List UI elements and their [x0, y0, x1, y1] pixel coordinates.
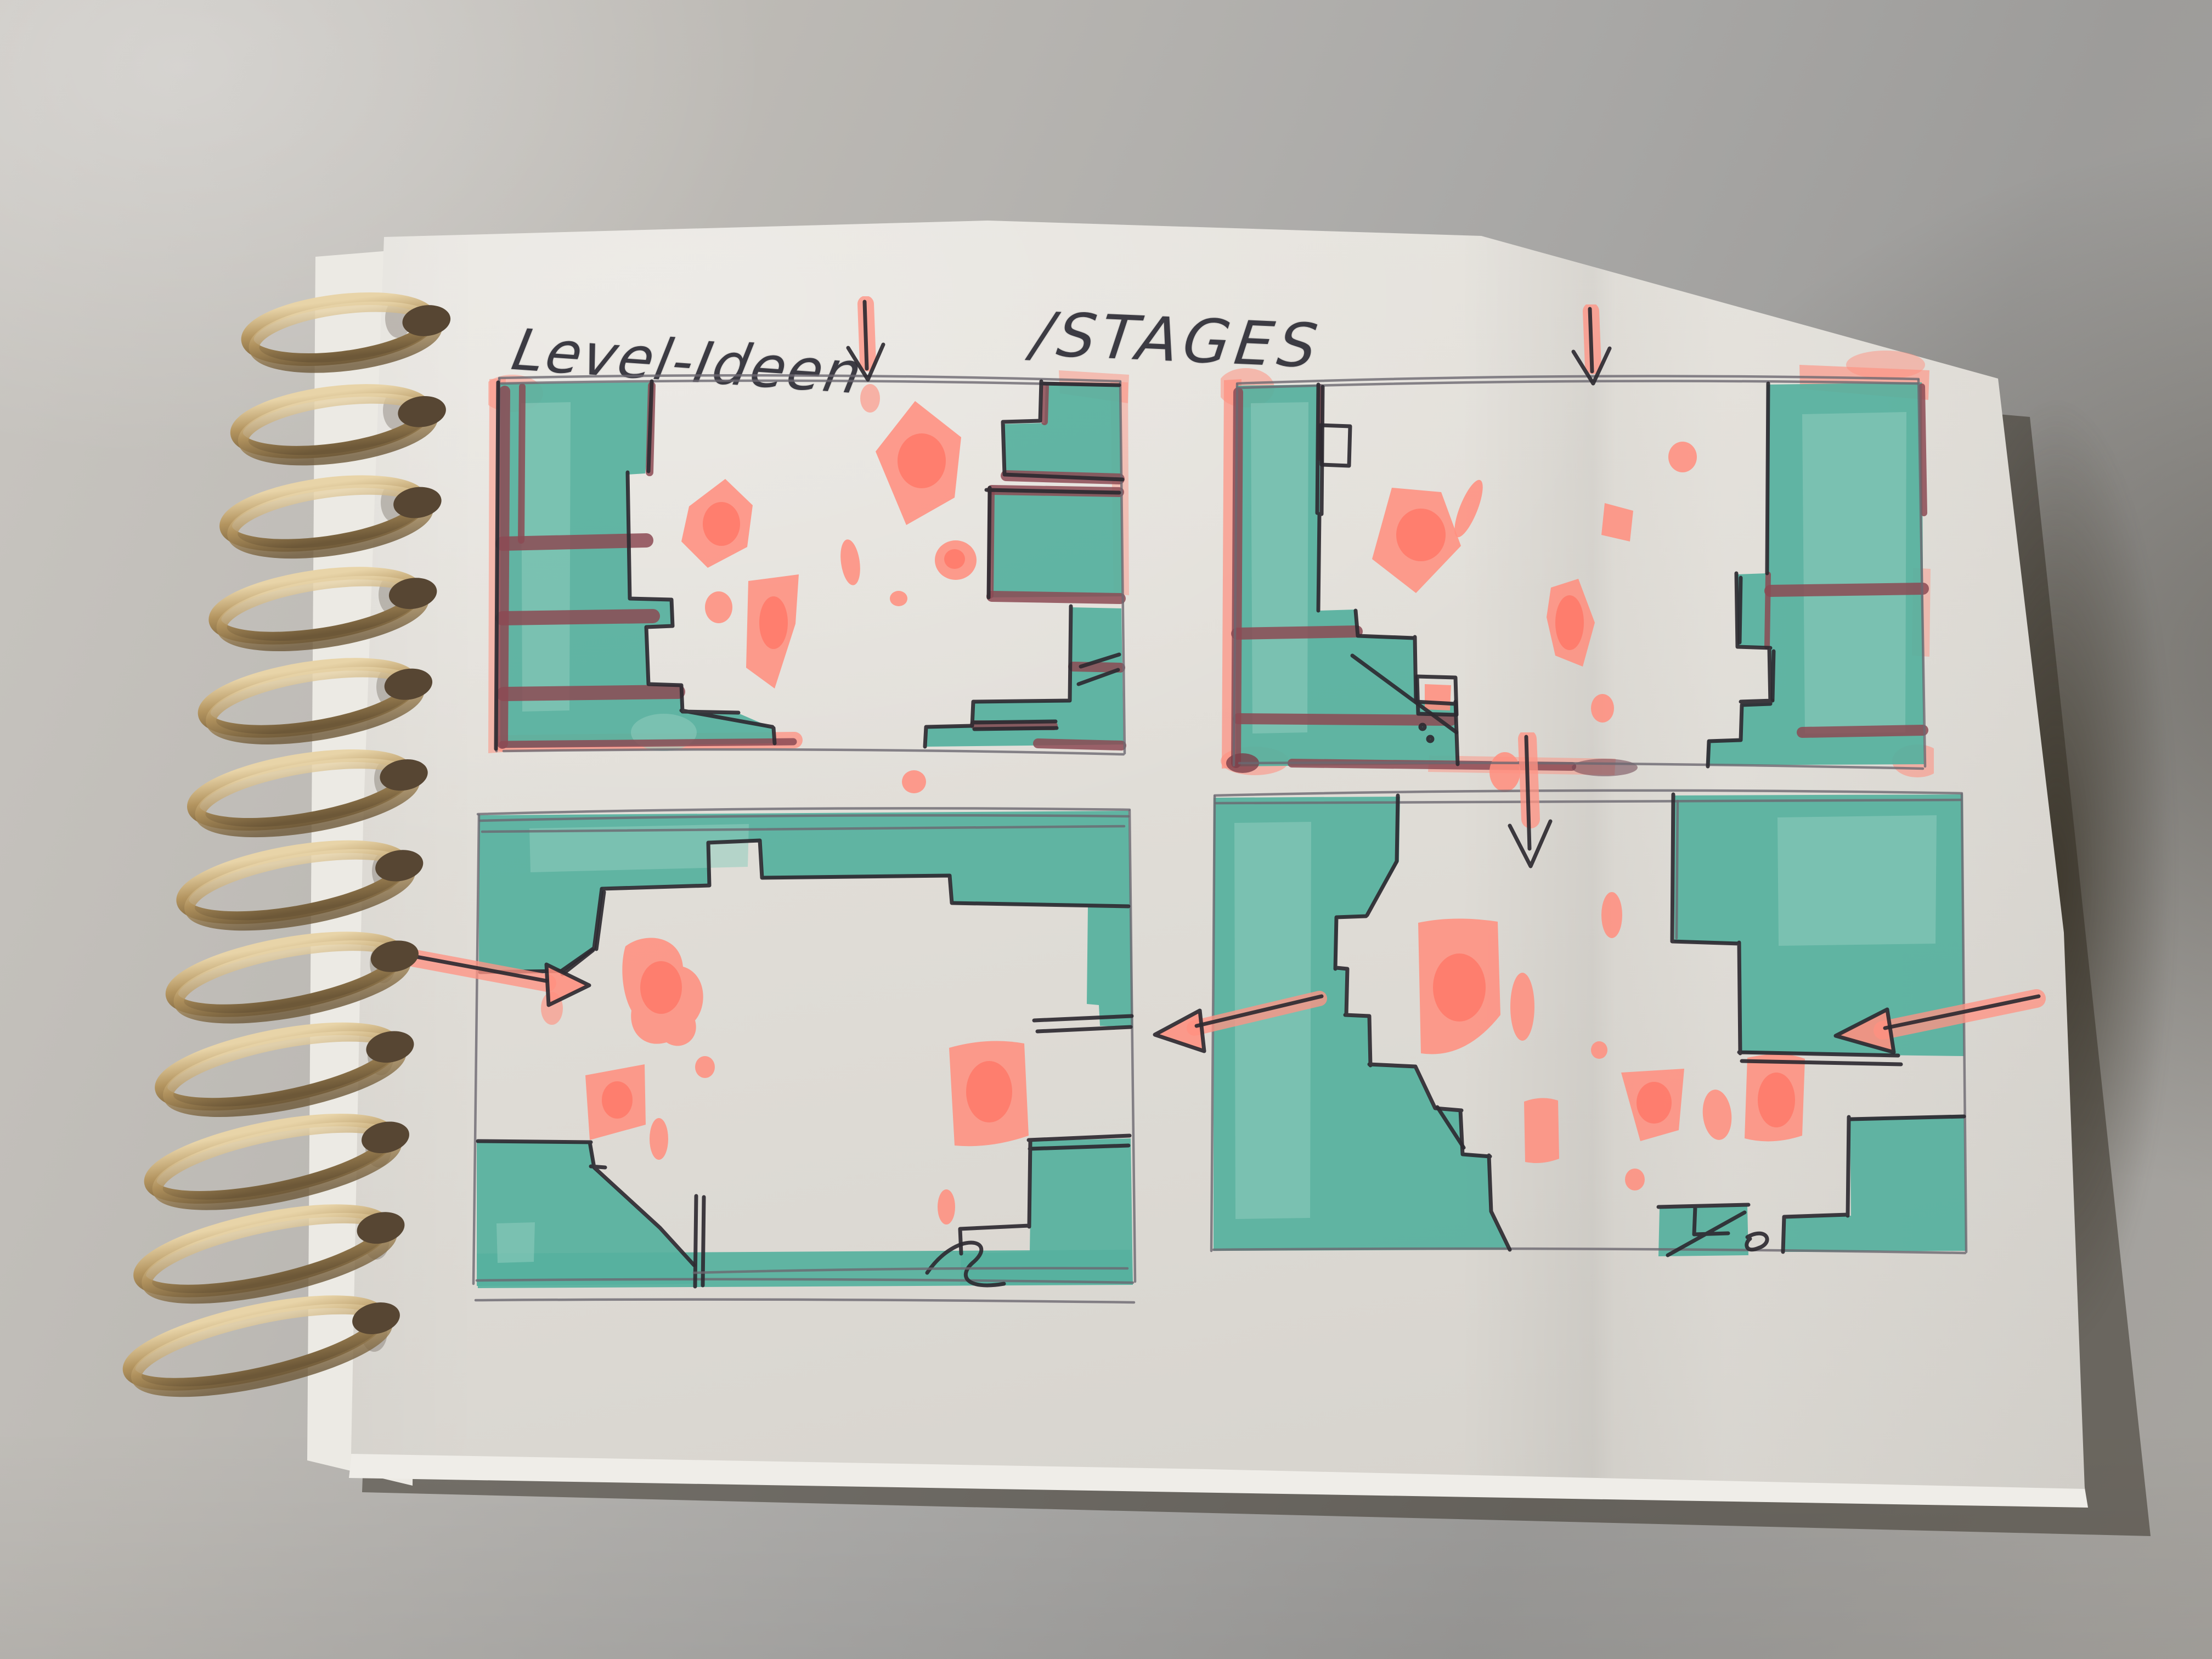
panel1-pickups [681, 401, 977, 689]
binding-coil [200, 649, 438, 752]
binding-coil [244, 287, 455, 377]
arrow-down-into-stage-4 [1498, 732, 1575, 894]
binding-coil [133, 1190, 412, 1316]
binding-coil [144, 1101, 416, 1222]
spiral-binding [0, 0, 494, 1454]
stage-sketch-3-drawing [464, 790, 1144, 1306]
binding-coil [189, 740, 434, 846]
pink-dot-between-panels [901, 769, 927, 794]
arrow-left-into-stage-3 [1144, 982, 1330, 1067]
arrow-down-into-stage-2 [1564, 304, 1629, 411]
panel3-terrain [477, 811, 1133, 1288]
stage-sketch-2-drawing [1221, 348, 1934, 793]
binding-coil [233, 378, 450, 471]
panel2-terrain [1236, 382, 1924, 766]
binding-coil [211, 559, 442, 658]
binding-coil [166, 920, 425, 1034]
stage-sketch-1 [488, 359, 1130, 768]
stage-sketch-2 [1221, 348, 1934, 793]
arrow-down-into-stage-1 [839, 296, 905, 414]
panel3-pickups [585, 938, 1029, 1224]
binding-coil [155, 1010, 421, 1128]
binding-coil [178, 830, 430, 940]
stage-sketch-1-drawing [488, 359, 1130, 768]
binding-coil [222, 468, 446, 565]
arrow-left-into-stage-4 [1816, 977, 2046, 1073]
stage-sketch-3 [464, 790, 1144, 1306]
